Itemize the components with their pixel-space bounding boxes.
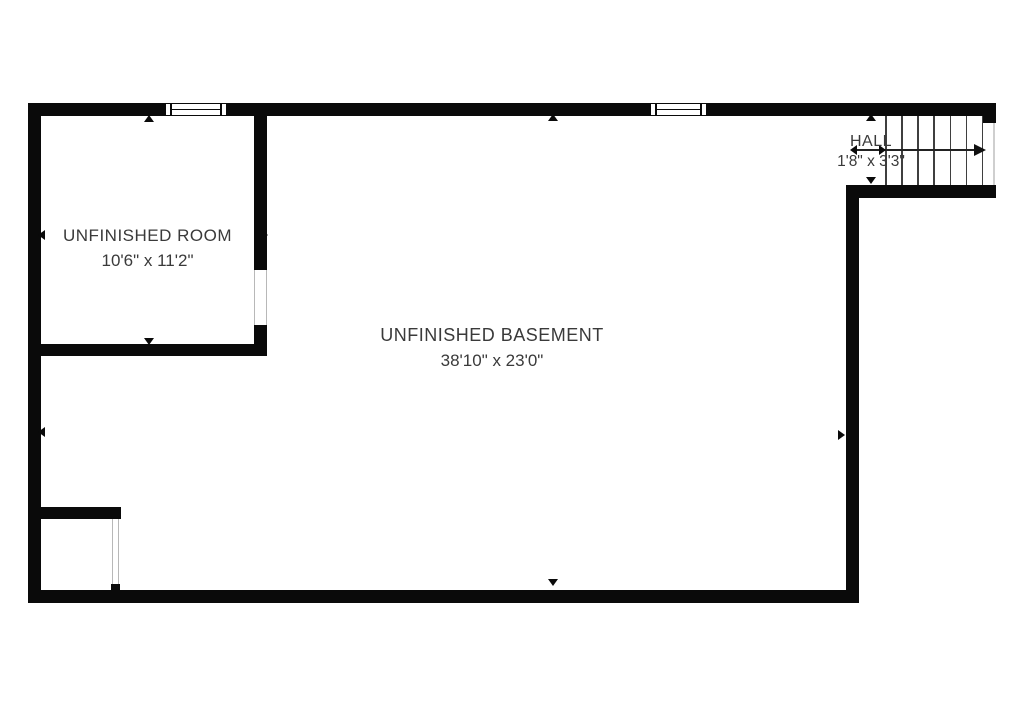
dimension-marker-basement-right-icon — [838, 430, 845, 440]
closet-door-jamb-line — [118, 519, 119, 584]
room-label-hall: HALL 1'8" x 3'3" — [806, 133, 936, 170]
window-pane-line — [171, 109, 221, 111]
room-door-jamb-line — [254, 270, 255, 325]
wall-top-right-block — [982, 103, 996, 123]
room-name: HALL — [806, 133, 936, 150]
stair-cut-line — [993, 123, 995, 185]
room-name: UNFINISHED BASEMENT — [342, 325, 642, 345]
wall-hall-bottom — [846, 185, 996, 198]
dimension-marker-room-top-icon — [144, 115, 154, 122]
dimension-marker-basement-left-icon — [38, 427, 45, 437]
window-pane-line — [656, 109, 701, 111]
dimension-marker-room-bottom-icon — [144, 338, 154, 345]
stair-arrow-head-icon — [974, 144, 986, 156]
dimension-marker-basement-bottom-icon — [548, 579, 558, 586]
room-dimensions: 10'6" x 11'2" — [41, 251, 254, 271]
room-label-unfinished-basement: UNFINISHED BASEMENT 38'10" x 23'0" — [342, 325, 642, 371]
closet-door-jamb-line — [112, 519, 113, 584]
window-icon — [165, 103, 227, 116]
room-door-jamb-line — [266, 270, 267, 325]
floor-plan: UNFINISHED ROOM 10'6" x 11'2" UNFINISHED… — [0, 0, 1024, 705]
dimension-marker-hall-top-icon — [866, 114, 876, 121]
window-icon — [650, 103, 707, 116]
room-dimensions: 1'8" x 3'3" — [806, 153, 936, 170]
wall-closet-stub — [111, 584, 120, 591]
room-label-unfinished-room: UNFINISHED ROOM 10'6" x 11'2" — [41, 226, 254, 271]
dimension-marker-basement-top-icon — [548, 114, 558, 121]
dimension-marker-hall-bottom-icon — [866, 177, 876, 184]
wall-room-right-upper — [254, 116, 267, 270]
dimension-marker-room-right-icon — [261, 230, 268, 240]
wall-bottom — [28, 590, 859, 603]
room-dimensions: 38'10" x 23'0" — [342, 351, 642, 371]
wall-right-basement — [846, 185, 859, 603]
wall-closet-top — [41, 507, 121, 519]
wall-room-right-stub — [254, 325, 267, 344]
room-name: UNFINISHED ROOM — [41, 226, 254, 246]
wall-room-bottom — [28, 344, 267, 356]
